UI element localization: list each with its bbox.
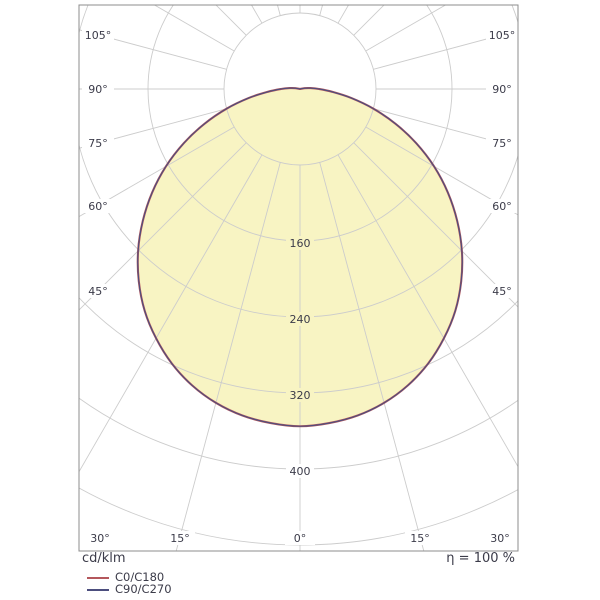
angle-label-right: 60° (492, 200, 512, 213)
angle-label-left: 90° (88, 83, 108, 96)
angle-label-left: 75° (88, 137, 108, 150)
ring-label: 160 (290, 237, 311, 250)
angle-label-right: 105° (489, 29, 516, 42)
angle-label-bottom: 0° (294, 532, 307, 545)
c90-c270-line-swatch (87, 589, 109, 591)
ring-label: 400 (290, 465, 311, 478)
angle-label-bottom: 15° (410, 532, 430, 545)
efficiency-label: η = 100 % (380, 551, 515, 566)
legend-item-c90-c270: C90/C270 (87, 584, 172, 595)
angle-label-bottom: 15° (170, 532, 190, 545)
angle-label-right: 75° (492, 137, 512, 150)
angle-label-left: 105° (85, 29, 112, 42)
angle-label-left: 60° (88, 200, 108, 213)
ring-label: 240 (290, 313, 311, 326)
legend: C0/C180 C90/C270 (87, 572, 172, 596)
grid-radial-line (0, 0, 234, 51)
angle-label-right: 90° (492, 83, 512, 96)
angle-label-right: 45° (492, 285, 512, 298)
grid-radial-line (320, 0, 497, 16)
photometric-polar-diagram: 105°105°90°90°75°75°60°60°45°45°30°15°0°… (0, 0, 600, 600)
ring-label: 320 (290, 389, 311, 402)
grid-radial-line (366, 0, 600, 51)
angle-label-bottom: 30° (490, 532, 510, 545)
angle-label-left: 45° (88, 285, 108, 298)
legend-label: C90/C270 (115, 584, 172, 595)
unit-label: cd/klm (82, 551, 126, 566)
c0-c180-line-swatch (87, 577, 109, 579)
polar-plot-svg: 105°105°90°90°75°75°60°60°45°45°30°15°0°… (0, 0, 600, 600)
grid-radial-line (103, 0, 280, 16)
angle-label-bottom: 30° (90, 532, 110, 545)
